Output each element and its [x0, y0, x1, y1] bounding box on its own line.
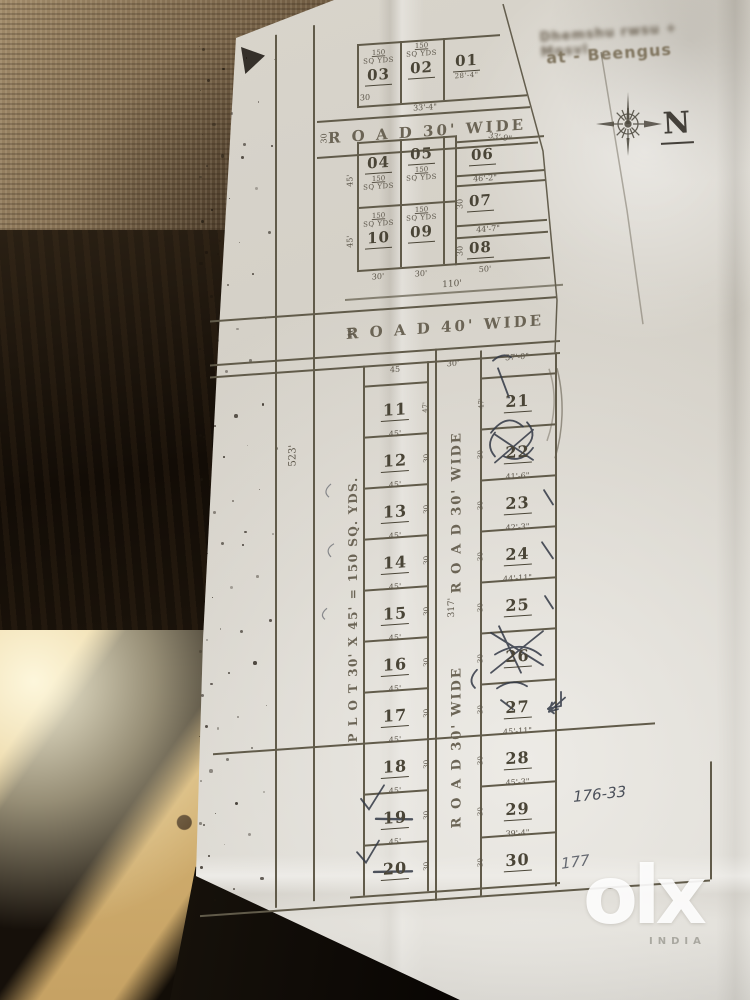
plot-number: 23	[503, 492, 531, 515]
plot-depth-dim: 30	[423, 555, 431, 564]
olx-country-label: INDIA	[649, 936, 706, 947]
plot-cell-02: 150 SQ YDS 02	[400, 40, 443, 78]
plot-number: 28	[503, 747, 531, 770]
plot-cell-10: 150 SQ YDS 10	[357, 210, 400, 248]
dim-label: 45'	[346, 174, 355, 187]
unit-label: SQ YDS	[400, 48, 443, 59]
plot-number: 17	[381, 705, 409, 728]
plot-depth-dim: 47'	[477, 397, 485, 408]
plot-cell-05: 05 150 SQ YDS	[400, 142, 443, 183]
plot-depth-dim: 30	[423, 504, 431, 513]
plot-number: 25	[503, 594, 531, 617]
site-plan: 150 SQ YDS 03 150 SQ YDS 02 01 28'-4" 30…	[245, 0, 725, 972]
plot-number: 09	[408, 222, 435, 244]
plot-number: 10	[365, 228, 392, 250]
plot-depth-dim: 30	[476, 857, 484, 866]
plot-number: 27	[503, 696, 531, 719]
plot-width-dim: 45'	[389, 684, 401, 694]
plot-number: 19	[381, 807, 409, 830]
plot-number: 14	[381, 552, 409, 575]
plot-depth-dim: 30	[476, 449, 484, 458]
dim-label: 46'-2"	[473, 173, 497, 184]
plot-number: 11	[381, 399, 409, 422]
plot-width-dim: 45'	[389, 735, 401, 745]
plot-number: 12	[381, 450, 409, 473]
plot-depth-dim: 30	[476, 755, 484, 764]
tick-label: 40	[347, 327, 356, 338]
plot-width-dim: 45'	[389, 582, 401, 592]
tick-label: 30	[320, 133, 329, 144]
plot-number: 02	[408, 58, 435, 80]
unit-label: SQ YDS	[400, 212, 443, 223]
plot-width-dim: 45'	[389, 531, 401, 541]
plot-width-dim: 45'-11"	[503, 726, 532, 737]
plot-number: 05	[408, 144, 435, 166]
road-dim-317: 317'	[447, 597, 457, 617]
plot-number: 30	[503, 849, 531, 872]
plot-number: 01	[453, 51, 480, 73]
dim-label: 50'	[479, 264, 491, 274]
plot-depth-dim: 30	[423, 657, 431, 666]
dim-110-label: 110'	[442, 279, 462, 290]
olx-logo: olx	[583, 849, 702, 942]
plot-width-dim: 45'	[389, 633, 401, 643]
plot-number: 26	[503, 645, 531, 668]
plot-depth-dim: 30	[423, 708, 431, 717]
plot-number: 21	[503, 390, 531, 413]
dim-label: 45'	[346, 235, 355, 248]
plot-width-dim: 45'	[389, 837, 401, 847]
plot-number: 15	[381, 603, 409, 626]
plot-number-07: 07	[467, 191, 494, 213]
dim-label: 33'-4"	[413, 102, 437, 113]
plot-depth-dim: 30	[423, 606, 431, 615]
tick-label: 30	[456, 246, 465, 257]
plot-cell-25: 44'-11" 25 30	[480, 576, 555, 632]
plot-cell-26: 26 30	[480, 627, 555, 683]
plot-depth-dim: 30	[476, 806, 484, 815]
plot-width-dim: 42'-3"	[506, 522, 530, 533]
boundary-dim-523: 523'	[288, 444, 299, 467]
plot-width-dim: 45'	[389, 786, 401, 796]
plot-cell-03: 150 SQ YDS 03	[357, 47, 400, 85]
plot-number: 22	[503, 441, 531, 464]
dim-label: 30'	[372, 272, 384, 282]
plot-depth-dim: 30	[423, 759, 431, 768]
dim-label: 30'	[447, 359, 459, 369]
dim-label: 37'-0"	[505, 352, 529, 363]
plot-width-dim: 39'-4"	[506, 828, 530, 839]
road-30-vertical-lower: R O A D 30' WIDE	[450, 666, 465, 829]
plot-depth-dim: 30	[423, 453, 431, 462]
plot-depth-dim: 30	[476, 704, 484, 713]
tick-label: 30	[360, 93, 370, 103]
plot-number: 24	[503, 543, 531, 566]
dim-label: 30'	[415, 269, 427, 279]
plot-number: 18	[381, 756, 409, 779]
plot-depth-dim: 30	[476, 653, 484, 662]
plot-depth-dim: 30	[476, 551, 484, 560]
plot-cell-01: 01 28'-4"	[445, 49, 488, 81]
plot-cell-09: 150 SQ YDS 09	[400, 204, 443, 242]
plot-depth-dim: 47'	[422, 401, 430, 412]
plot-cell-04: 04 150 SQ YDS	[357, 151, 400, 192]
plot-width-dim: 45'	[389, 480, 401, 490]
plot-width-dim: 41'-6"	[506, 471, 530, 482]
plot-depth-dim: 30	[423, 810, 431, 819]
plot-number: 29	[503, 798, 531, 821]
plot-number: 13	[381, 501, 409, 524]
dim-label: 45	[390, 365, 400, 375]
road-30-vertical-upper: R O A D 30' WIDE	[450, 431, 465, 594]
plot-cell-30: 39'-4" 30 30	[480, 831, 555, 887]
plot-width-dim: 45'-3"	[506, 777, 530, 788]
plot-depth-dim: 30	[476, 602, 484, 611]
plot-cell-20: 45' 20 30	[363, 840, 427, 895]
plot-number: 03	[365, 65, 392, 87]
plot-size-note: P L O T 30' X 45' = 150 SQ. YDS.	[346, 476, 360, 743]
plot-number-06: 06	[469, 144, 496, 166]
unit-label: SQ YDS	[357, 55, 400, 66]
dim-label: 44'-7"	[476, 224, 500, 235]
unit-label: SQ YDS	[357, 218, 400, 229]
plot-width-dim: 44'-11"	[503, 573, 532, 584]
plot-number: 04	[365, 153, 392, 175]
plot-width-dim: 45'	[389, 429, 401, 439]
plot-depth-dim: 30	[423, 861, 431, 870]
plot-cell-21: 21 47'	[480, 372, 555, 428]
plot-number: 16	[381, 654, 409, 677]
plot-depth-dim: 30	[476, 500, 484, 509]
plot-number: 20	[381, 858, 409, 881]
olx-watermark: olx INDIA	[583, 856, 750, 936]
plot-number-08: 08	[467, 238, 494, 260]
tick-label: 30	[456, 199, 465, 210]
